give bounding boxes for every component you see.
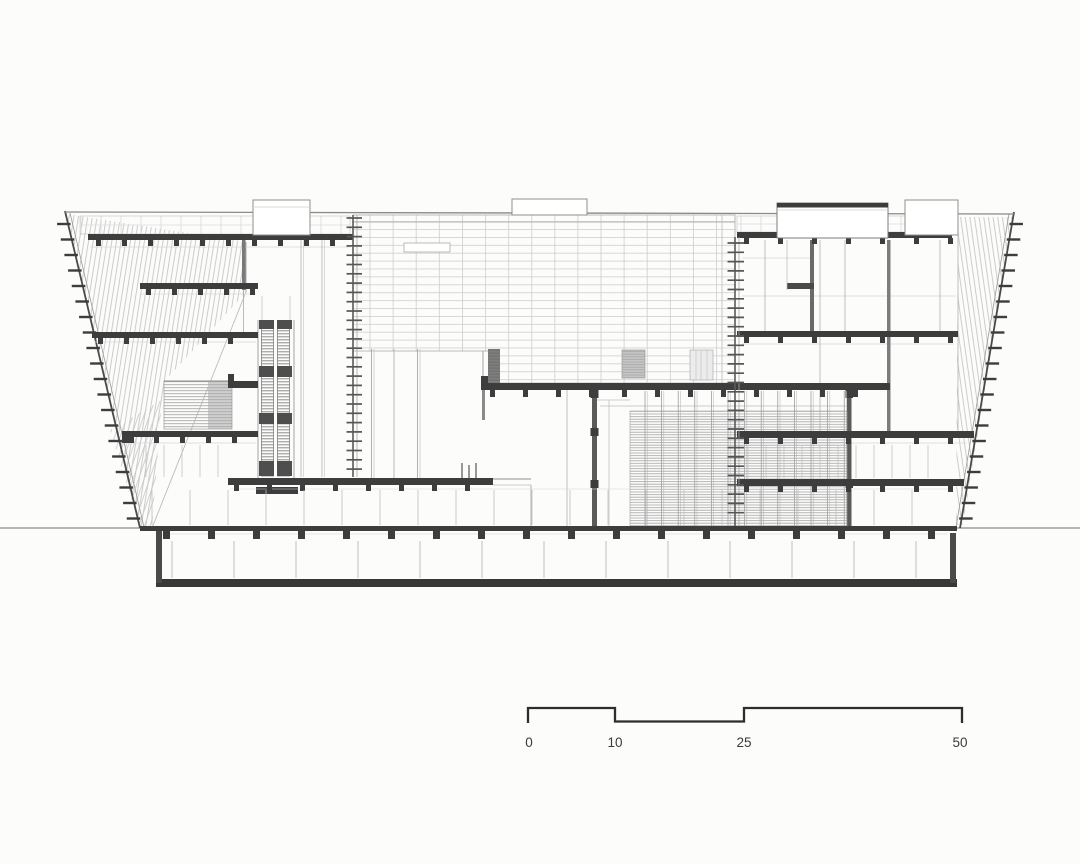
building-section-drawing: 0 10 25 50 bbox=[0, 0, 1080, 864]
rooftop-plant-box-3 bbox=[777, 203, 888, 238]
atrium-void-columns bbox=[372, 349, 421, 478]
scale-label-25: 25 bbox=[736, 735, 751, 750]
escalator-core bbox=[258, 296, 294, 478]
curtain-wall-grid bbox=[353, 215, 735, 383]
right-louver-wall bbox=[956, 212, 1014, 528]
scale-bar-line bbox=[528, 708, 962, 723]
basement-structure bbox=[163, 531, 935, 578]
architectural-section-sheet: 0 10 25 50 bbox=[0, 0, 1080, 864]
scale-bar: 0 10 25 50 bbox=[525, 708, 967, 750]
rooftop-plant-box-4 bbox=[905, 200, 958, 235]
scale-label-0: 0 bbox=[525, 735, 533, 750]
railing-posts bbox=[462, 463, 476, 478]
grid-highlight-cells bbox=[404, 243, 450, 252]
scale-label-50: 50 bbox=[952, 735, 967, 750]
left-louver-wall bbox=[65, 211, 246, 528]
rooftop-plant-box-2 bbox=[512, 199, 587, 215]
vent-box bbox=[690, 350, 713, 380]
auditorium-slat-wall bbox=[600, 391, 847, 526]
tiered-seating-block bbox=[164, 381, 232, 429]
scale-label-10: 10 bbox=[607, 735, 622, 750]
rooftop-plant-box-1 bbox=[253, 200, 310, 235]
